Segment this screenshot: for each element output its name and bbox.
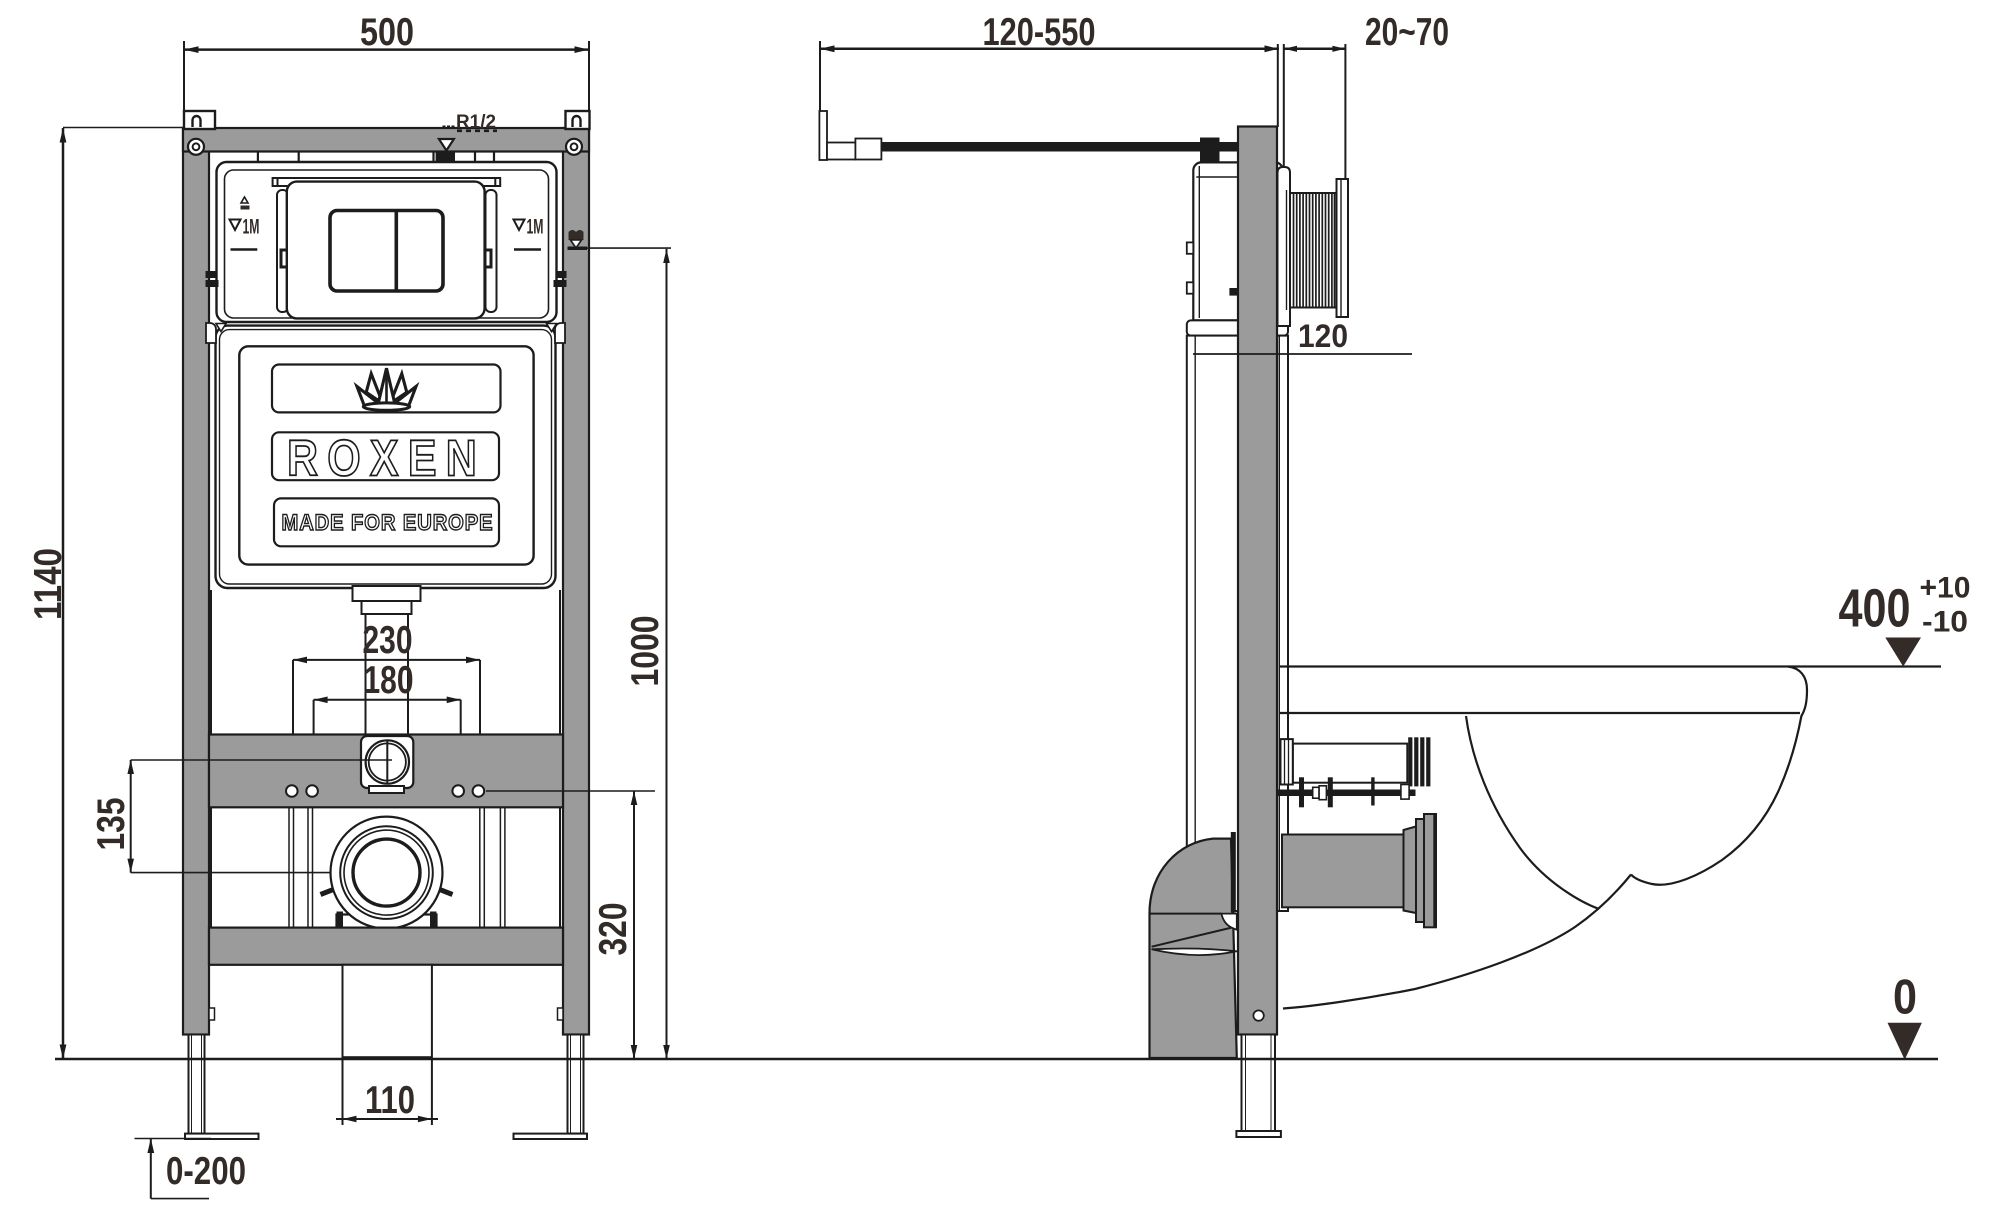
svg-text:180: 180 xyxy=(364,659,414,702)
svg-text:400: 400 xyxy=(1839,579,1911,639)
svg-text:0: 0 xyxy=(1893,971,1917,1025)
svg-text:120: 120 xyxy=(1298,318,1348,354)
svg-text:120-550: 120-550 xyxy=(983,11,1096,54)
svg-text:500: 500 xyxy=(360,11,414,54)
svg-text:135: 135 xyxy=(90,798,133,851)
svg-text:230: 230 xyxy=(363,619,413,662)
svg-text:+10: +10 xyxy=(1920,572,1971,605)
svg-text:0-200: 0-200 xyxy=(166,1150,246,1193)
svg-text:20~70: 20~70 xyxy=(1365,11,1449,54)
svg-text:1000: 1000 xyxy=(624,616,667,687)
svg-text:110: 110 xyxy=(365,1079,415,1122)
svg-text:320: 320 xyxy=(592,903,635,956)
svg-text:ROXEN: ROXEN xyxy=(287,430,486,487)
svg-text:1M: 1M xyxy=(243,216,260,239)
svg-text:1140: 1140 xyxy=(27,548,70,620)
svg-text:-10: -10 xyxy=(1922,606,1968,639)
svg-text:MADE FOR EUROPE: MADE FOR EUROPE xyxy=(282,510,494,535)
svg-text:1M: 1M xyxy=(527,216,544,239)
